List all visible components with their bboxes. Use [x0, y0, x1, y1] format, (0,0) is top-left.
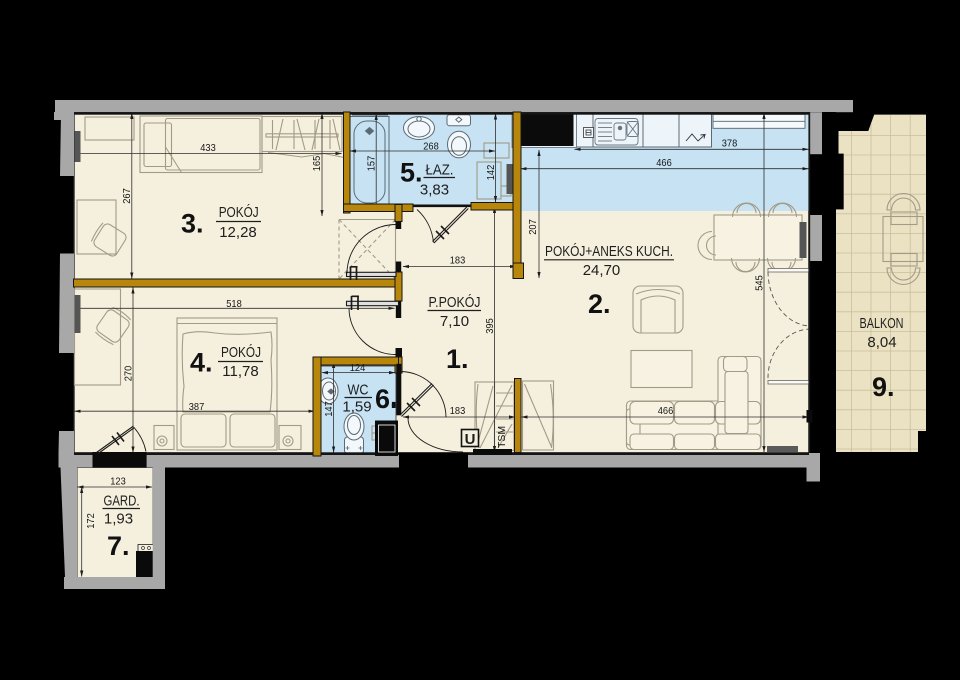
svg-text:BALKON: BALKON	[860, 315, 904, 332]
svg-text:147: 147	[323, 401, 335, 417]
svg-text:466: 466	[656, 157, 672, 169]
svg-text:2.: 2.	[588, 289, 611, 319]
svg-text:WC: WC	[348, 382, 369, 399]
svg-text:3,83: 3,83	[420, 182, 449, 199]
svg-text:ŁAZ.: ŁAZ.	[426, 162, 454, 179]
svg-text:123: 123	[110, 476, 126, 488]
svg-text:183: 183	[450, 405, 466, 417]
svg-text:6.: 6.	[375, 384, 398, 414]
svg-text:3.: 3.	[181, 209, 204, 239]
svg-text:POKÓJ: POKÓJ	[221, 344, 261, 361]
svg-text:270: 270	[123, 366, 135, 382]
svg-text:1.: 1.	[446, 344, 469, 374]
svg-text:P.POKÓJ: P.POKÓJ	[429, 294, 481, 311]
svg-text:142: 142	[485, 165, 497, 181]
svg-text:268: 268	[423, 141, 439, 153]
svg-text:433: 433	[200, 142, 216, 154]
svg-text:5.: 5.	[400, 158, 423, 188]
svg-text:24,70: 24,70	[583, 262, 621, 279]
svg-text:267: 267	[121, 188, 133, 204]
svg-text:U: U	[465, 431, 476, 448]
svg-text:GARD.: GARD.	[104, 493, 140, 510]
svg-text:1,59: 1,59	[342, 399, 371, 416]
svg-text:7.: 7.	[107, 531, 130, 561]
svg-text:378: 378	[722, 138, 738, 150]
svg-text:466: 466	[658, 405, 674, 417]
svg-text:POKÓJ: POKÓJ	[219, 204, 259, 221]
svg-text:518: 518	[226, 298, 242, 310]
svg-text:12,28: 12,28	[219, 224, 257, 241]
svg-text:4.: 4.	[190, 348, 213, 378]
svg-text:395: 395	[484, 318, 496, 334]
svg-text:124: 124	[350, 362, 366, 374]
svg-text:1,93: 1,93	[104, 511, 133, 528]
svg-text:172: 172	[85, 513, 97, 529]
svg-text:POKÓJ+ANEKS KUCH.: POKÓJ+ANEKS KUCH.	[545, 243, 673, 260]
svg-text:9.: 9.	[872, 372, 895, 402]
svg-text:207: 207	[527, 219, 539, 235]
svg-text:165: 165	[311, 156, 323, 172]
svg-text:387: 387	[189, 401, 205, 413]
svg-text:TSM: TSM	[496, 426, 508, 448]
svg-text:157: 157	[366, 156, 378, 172]
svg-text:545: 545	[754, 275, 766, 291]
svg-text:183: 183	[450, 255, 466, 267]
svg-text:8,04: 8,04	[867, 334, 896, 351]
svg-text:7,10: 7,10	[440, 313, 469, 330]
svg-text:11,78: 11,78	[222, 363, 258, 380]
